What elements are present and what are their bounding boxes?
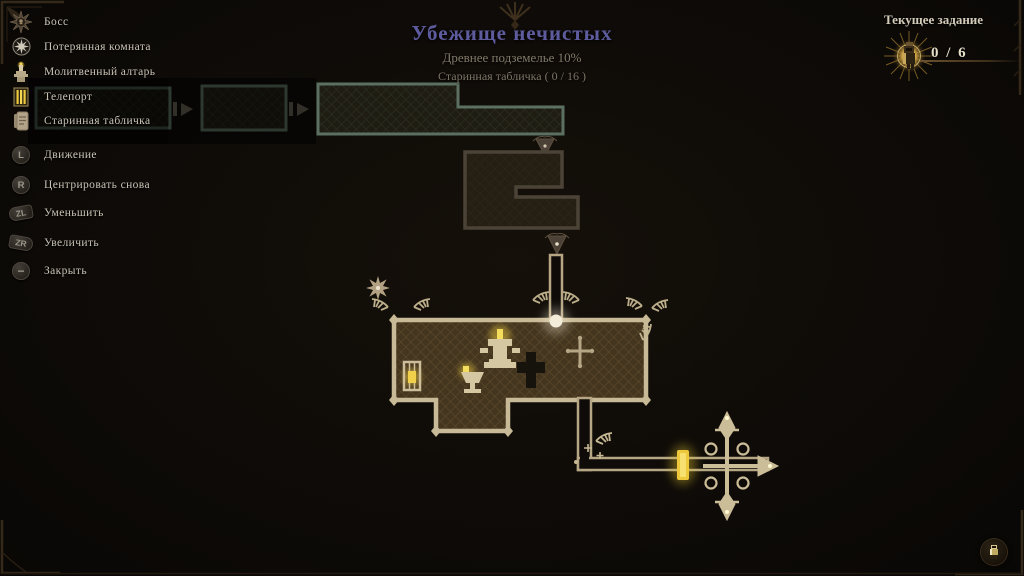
current-quest-label: Текущее задание xyxy=(884,12,983,28)
prayer-altar-icon xyxy=(9,61,33,83)
teleport-icon xyxy=(9,86,33,108)
minus-button-icon: − xyxy=(12,262,30,280)
winding-corridor xyxy=(465,137,578,322)
legend-label: Старинная табличка xyxy=(44,115,151,127)
dungeon-map-canvas[interactable] xyxy=(0,0,1024,576)
zr-button-icon: ZR xyxy=(8,234,34,252)
page-title: Убежище нечистых xyxy=(0,21,1024,46)
teleport-marker xyxy=(670,445,696,485)
r-button-icon: R xyxy=(12,176,30,194)
door-ornament-icon xyxy=(545,234,569,255)
entry-orb-marker xyxy=(543,308,569,334)
legend-item-prayer-altar: Молитвенный алтарь xyxy=(9,61,155,83)
player-stamp-icon xyxy=(981,539,1007,565)
control-label: Движение xyxy=(44,149,97,161)
zl-button-icon: ZL xyxy=(8,204,34,222)
control-label: Центрировать снова xyxy=(44,179,150,191)
boss-icon xyxy=(9,10,33,34)
main-hall xyxy=(366,276,668,437)
legend-label: Босс xyxy=(44,16,68,28)
control-hint-close: − Закрыть xyxy=(9,262,87,280)
control-hint-recenter: R Центрировать снова xyxy=(9,176,150,194)
map-screen: { "header": { "title": "Убежище нечистых… xyxy=(0,0,1024,576)
control-label: Увеличить xyxy=(44,237,99,249)
legend-label: Телепорт xyxy=(44,91,92,103)
control-label: Закрыть xyxy=(44,265,87,277)
control-hint-move: L Движение xyxy=(9,146,97,164)
control-label: Уменьшить xyxy=(44,207,104,219)
compass-rose-ornament xyxy=(703,412,778,520)
legend-item-ancient-tablet: Старинная табличка xyxy=(9,110,151,132)
control-hint-zoom-out: ZL Уменьшить xyxy=(9,206,104,220)
lost-room-star-marker xyxy=(366,276,390,300)
quest-knight-icon xyxy=(880,27,938,85)
legend-item-boss: Босс xyxy=(9,10,68,34)
ancient-tablet-icon xyxy=(9,110,33,132)
quest-underline xyxy=(920,60,1020,62)
legend-item-teleport: Телепорт xyxy=(9,86,92,108)
legend-item-lost-room: Потерянная комната xyxy=(9,36,151,57)
legend-label: Молитвенный алтарь xyxy=(44,66,155,78)
control-hint-zoom-in: ZR Увеличить xyxy=(9,236,99,250)
east-passage xyxy=(574,398,778,520)
lost-room-icon xyxy=(9,36,33,57)
legend-label: Потерянная комната xyxy=(44,41,151,53)
l-button-icon: L xyxy=(12,146,30,164)
